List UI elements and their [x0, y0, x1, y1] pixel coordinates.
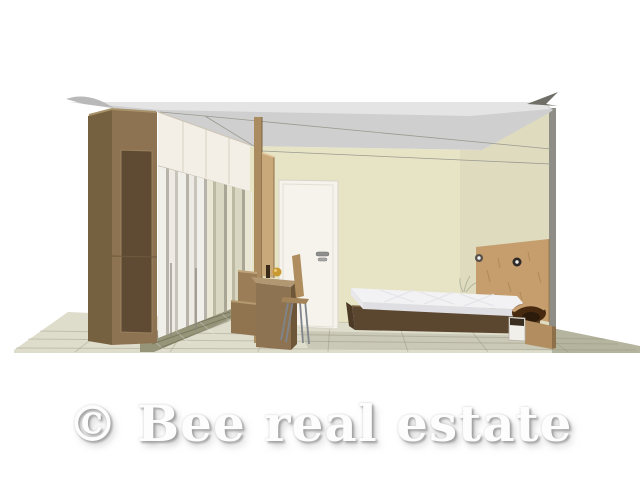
nightstand-drawer: [509, 317, 525, 341]
wall-lamp-left: [475, 254, 483, 262]
partition-panel: [262, 153, 274, 278]
closet-stripe: [232, 186, 235, 308]
wardrobe-door-panel: [121, 150, 152, 333]
closet-stripe: [204, 179, 207, 320]
closet-stripe: [216, 182, 224, 315]
watermark-text: © Bee real estate: [0, 396, 640, 451]
closet-stripe: [224, 184, 227, 312]
closet-stripe: [197, 177, 204, 323]
closet-stripe: [178, 172, 186, 331]
closet-stripe: [189, 175, 194, 326]
room-render-page: © Bee real estate: [0, 0, 640, 480]
desk-bottle: [266, 265, 270, 278]
gold-ornament: [273, 268, 282, 277]
closet-stripe: [169, 169, 175, 334]
ceiling-flare-right: [527, 92, 558, 106]
closet-stripe: [166, 168, 169, 335]
closet-stripe: [227, 185, 232, 310]
wall-edge-strip: [549, 108, 556, 331]
closet-stripe: [207, 180, 213, 319]
wardrobe: [88, 109, 157, 345]
closet-stripe: [159, 166, 166, 337]
floor-right-wedge: [552, 328, 640, 353]
closet-stripe: [175, 171, 178, 332]
closet-stripe: [186, 174, 189, 327]
wall-lamp-right: [513, 258, 522, 267]
closet-stripe: [213, 181, 216, 316]
